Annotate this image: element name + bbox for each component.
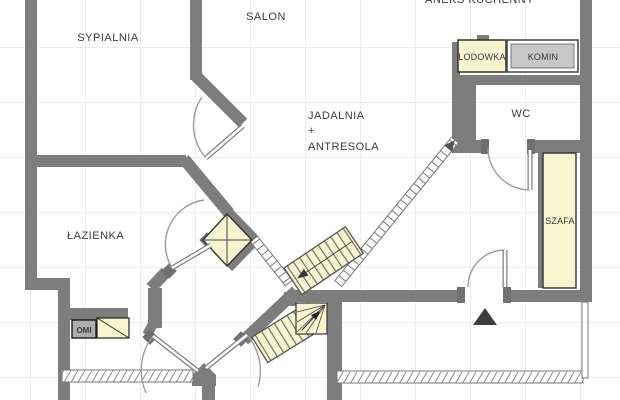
door-wc <box>488 148 530 190</box>
wall-segment <box>58 290 70 400</box>
stairs-winder <box>296 303 327 334</box>
room-label-salon: SALON <box>246 11 286 23</box>
floor-plan-drawing: LODOWKA KOMIN SZAFA OMI <box>0 0 620 400</box>
wall-segment <box>538 152 543 288</box>
room-label-lazienka: ŁAZIENKA <box>67 230 124 242</box>
door-jamb <box>457 287 465 303</box>
room-label-sypialnia: SYPIALNIA <box>77 32 139 44</box>
chimney-label: KOMIN <box>528 52 559 62</box>
door-arc <box>468 250 505 287</box>
terrace-side-wall <box>582 302 588 378</box>
fridge-label: LODOWKA <box>458 52 505 62</box>
door-hallway <box>165 200 211 268</box>
entrance-arrow <box>473 308 497 325</box>
small-chimney-label: OMI <box>76 326 91 335</box>
wall-segment <box>452 85 476 142</box>
wall-diagonal <box>151 272 166 288</box>
wall-segment <box>452 75 592 85</box>
wall-segment <box>290 290 462 302</box>
wall-diagonal <box>196 76 243 123</box>
diagonal-walls <box>147 76 296 340</box>
railing-long <box>334 137 458 287</box>
door-bathroom <box>141 336 198 393</box>
wardrobe-box: SZAFA <box>543 153 576 288</box>
fridge-box: LODOWKA <box>458 40 506 72</box>
door-leaf-inner <box>172 245 211 268</box>
door-leaf-inner <box>206 335 247 368</box>
room-label-aneks-kuchenny: ANEKS KUCHENNY <box>425 0 534 6</box>
small-chimney-box: OMI <box>72 320 96 338</box>
terrace-hatch-pattern <box>337 371 583 383</box>
wall-segment <box>508 290 592 302</box>
wall-segment <box>190 0 202 80</box>
door-terrace <box>468 250 505 287</box>
room-label-wc: WC <box>511 108 530 120</box>
wardrobe-label: SZAFA <box>545 216 575 226</box>
washbasin-counter <box>97 318 129 338</box>
wall-segment <box>25 155 186 167</box>
wall-segment <box>530 140 592 153</box>
floor-plan: LODOWKA KOMIN SZAFA OMI <box>0 0 620 400</box>
door-jamb <box>503 287 511 303</box>
wall-segment <box>25 0 37 280</box>
door-leaf-inner <box>206 126 243 158</box>
terrace-hatch-pattern <box>62 370 193 382</box>
door-leaf-inner <box>153 336 198 371</box>
wall-diagonal <box>184 159 229 213</box>
chimney-box: KOMIN <box>507 40 578 72</box>
door-arc <box>141 336 153 393</box>
room-label-jadalnia-plus: + <box>308 125 315 137</box>
stairs-upper-flight <box>284 227 363 295</box>
door-arc <box>488 148 530 190</box>
room-label-jadalnia: JADALNIA <box>308 110 365 122</box>
door-arc <box>193 97 206 158</box>
railing-short <box>250 236 292 285</box>
room-label-antresola: ANTRESOLA <box>308 141 379 153</box>
wall-segment <box>25 278 70 290</box>
